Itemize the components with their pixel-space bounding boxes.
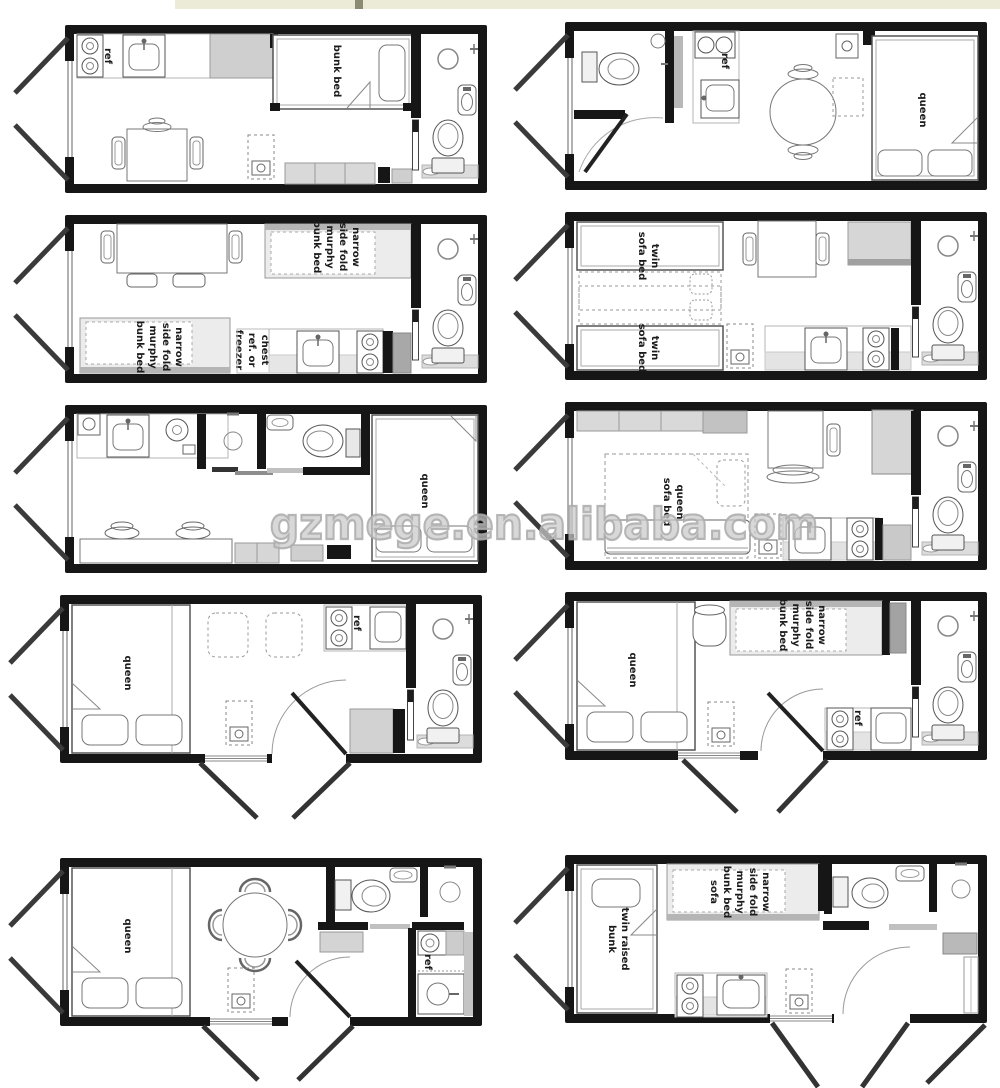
window [770, 1014, 832, 1023]
pillow [136, 978, 182, 1008]
kitchen: ref [77, 34, 278, 78]
pillow [82, 715, 128, 745]
container-door-swing [772, 1023, 818, 1087]
pillow [878, 150, 922, 176]
svg-text:narrow: narrow [816, 605, 827, 645]
kitchen: ref [324, 605, 408, 651]
kitchen-sink-icon [123, 35, 165, 77]
pillow [379, 45, 405, 101]
queen-bed: queen [72, 605, 190, 753]
fridge-label: ref [102, 48, 113, 65]
pillow [587, 712, 633, 742]
svg-text:side fold: side fold [160, 323, 171, 372]
chair-icon [827, 424, 840, 456]
stove-icon [827, 708, 853, 750]
chair-icon [190, 137, 203, 169]
kitchen-sink-icon [701, 80, 739, 118]
queen-label: queen [627, 653, 638, 688]
chair-icon [101, 231, 114, 263]
pillow [82, 978, 128, 1008]
cabinet [210, 34, 273, 78]
twin-raised-bunk: twin raised bunk [577, 865, 657, 1013]
queen-bed: queen [577, 602, 695, 750]
container-door-swing [683, 760, 737, 812]
kitchen-sink-icon [297, 331, 339, 373]
watermark: gzmege.en.alibaba.com [270, 499, 744, 550]
kitchen-sink-icon [805, 328, 847, 370]
fridge-label: ref [351, 615, 362, 632]
kitchen [269, 329, 411, 373]
stove-icon [677, 975, 703, 1017]
cabinet [890, 603, 906, 653]
svg-text:bunk bed: bunk bed [777, 599, 788, 652]
svg-text:sofa bed: sofa bed [636, 324, 647, 373]
wardrobe [872, 410, 913, 474]
toilet-icon [303, 425, 343, 457]
pocket-door [674, 36, 683, 108]
page: ref bunk bed [0, 0, 1000, 1088]
stove-icon [847, 518, 873, 560]
svg-text:bunk bed: bunk bed [311, 221, 322, 274]
toilet-icon [352, 880, 390, 912]
svg-text:murphy: murphy [734, 870, 745, 914]
cabinet [883, 525, 911, 560]
svg-text:twin: twin [649, 244, 660, 269]
stove-icon [357, 331, 383, 373]
stove-icon [326, 607, 352, 649]
cabinet [393, 333, 411, 373]
kitchen [765, 326, 911, 370]
toilet-icon [852, 878, 888, 908]
chair-icon [816, 233, 829, 265]
sink-icon [896, 866, 924, 881]
svg-text:murphy: murphy [147, 325, 158, 369]
cabinet [943, 933, 977, 954]
armchair [693, 605, 726, 646]
kitchen-sink-icon [107, 415, 149, 457]
container-door-swing [298, 1026, 353, 1080]
svg-text:chest: chest [259, 335, 270, 366]
queen-bed: queen [863, 31, 978, 180]
container-door-swing [778, 760, 827, 812]
queen-label: queen [122, 919, 133, 954]
fridge-label: ref [422, 954, 433, 971]
murphy-bed: narrow side fold murphy bunk bed [265, 221, 411, 278]
svg-text:sofa bed: sofa bed [636, 232, 647, 281]
fridge-label: ref [719, 53, 730, 70]
stove-icon [863, 328, 889, 370]
svg-text:narrow: narrow [173, 327, 184, 367]
svg-text:sofa: sofa [708, 880, 719, 904]
window [678, 751, 740, 760]
cabinet [350, 709, 393, 753]
bunk-bed: bunk bed [270, 35, 415, 111]
kitchen [675, 973, 767, 1017]
svg-text:side fold: side fold [803, 601, 814, 650]
chair-icon [229, 231, 242, 263]
door-leaf [927, 1025, 985, 1083]
queen-label: queen [917, 93, 928, 128]
svg-text:side fold: side fold [747, 868, 758, 917]
svg-text:murphy: murphy [324, 225, 335, 269]
svg-text:twin raised: twin raised [619, 907, 630, 970]
cabinet [848, 222, 911, 265]
kitchen: ref [825, 708, 911, 750]
svg-text:murphy: murphy [790, 603, 801, 647]
floorplan-10: twin raised bunk narrow side fold murphy… [505, 843, 997, 1088]
chair-icon [127, 274, 157, 287]
cabinet [320, 932, 363, 952]
murphy-bed: narrow side fold murphy bunk bed sofa [667, 864, 827, 920]
svg-text:side fold: side fold [337, 223, 348, 272]
bunk-bed-label: bunk bed [331, 45, 342, 98]
svg-text:ref. or: ref. or [246, 333, 257, 368]
svg-text:bunk: bunk [606, 925, 617, 953]
queen-label: queen [122, 656, 133, 691]
top-strip-notch [355, 0, 363, 9]
svg-text:narrow: narrow [350, 227, 361, 267]
top-strip [175, 0, 1000, 9]
svg-text:bunk bed: bunk bed [721, 866, 732, 919]
floorplan-9: queen [0, 846, 492, 1088]
container-door-swing [203, 1026, 258, 1080]
pillow [136, 715, 182, 745]
sink-icon [267, 415, 293, 430]
chair-icon [112, 137, 125, 169]
queen-bed: queen [72, 868, 190, 1016]
pillow [592, 879, 640, 907]
cabinet [235, 543, 257, 563]
kitchen: ref [693, 31, 739, 123]
kitchen-sink-icon [717, 975, 765, 1015]
floorplan-8: queen narrow side fold murphy bunk bed r… [505, 580, 997, 832]
window [210, 1017, 272, 1026]
pillow [928, 150, 972, 176]
svg-text:bunk bed: bunk bed [134, 321, 145, 374]
kitchen-sink-icon [871, 708, 911, 750]
svg-text:narrow: narrow [760, 872, 771, 912]
washer-icon [78, 414, 100, 435]
pillow [641, 712, 687, 742]
container-door-swing [293, 763, 350, 818]
chair-icon [743, 233, 756, 265]
toilet-icon [599, 53, 639, 85]
svg-text:freezer: freezer [233, 330, 244, 370]
window [205, 754, 267, 763]
cabinets [577, 411, 747, 433]
fridge-label: ref [852, 710, 863, 727]
floorplan-7: queen ref [0, 583, 492, 835]
murphy-bed: narrow side fold murphy bunk bed [730, 599, 906, 655]
stove-icon [77, 35, 103, 77]
container-door-swing [862, 1023, 908, 1087]
murphy-bed: narrow side fold murphy bunk bed [80, 318, 230, 373]
container-door-swing [200, 763, 257, 818]
svg-text:twin: twin [649, 336, 660, 361]
chair-icon [173, 274, 205, 287]
